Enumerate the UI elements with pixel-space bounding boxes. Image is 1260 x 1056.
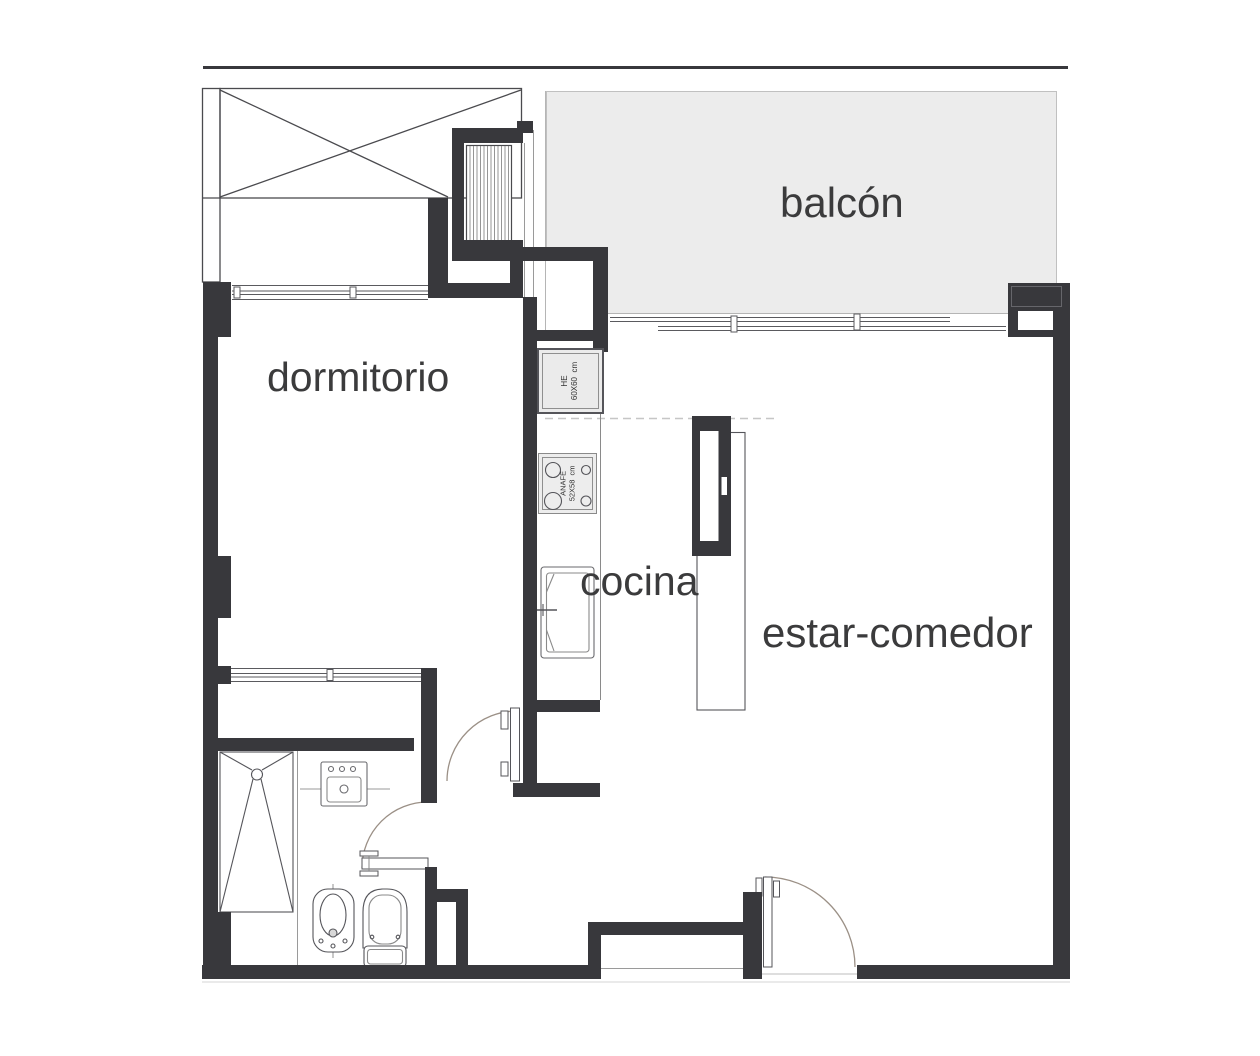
wall: [510, 256, 523, 298]
wall: [513, 783, 600, 797]
hall-door-swing: [447, 708, 520, 781]
wall: [1053, 337, 1070, 965]
wall: [428, 198, 448, 283]
wall: [537, 330, 598, 341]
bidet-symbol: [313, 884, 354, 958]
wall: [456, 902, 468, 965]
wall: [202, 965, 591, 979]
niche-recess: [601, 935, 743, 967]
floor-plan: HE 60X60 cm ANAFE 52X58 cm dormitorio ba…: [0, 0, 1260, 1056]
entrance-door-swing: [756, 877, 857, 974]
duct-hatch-symbol: [467, 146, 512, 243]
wall: [437, 889, 468, 902]
wall: [203, 282, 231, 337]
room-label-living-dining: estar-comedor: [762, 612, 1033, 654]
wall: [428, 283, 523, 298]
channel-lines: [525, 130, 534, 310]
shower-symbol: [220, 752, 293, 912]
wall: [425, 867, 437, 979]
wall: [452, 247, 608, 261]
washbasin-symbol: [300, 762, 390, 806]
cooktop-label-1: ANAFE: [558, 466, 567, 502]
room-label-balcony: balcón: [780, 182, 904, 224]
wall: [218, 556, 231, 618]
refrigerator: HE 60X60 cm: [537, 348, 604, 414]
refrigerator-label-1: HE: [561, 362, 571, 400]
island-counter: [692, 416, 745, 710]
wall: [203, 66, 1068, 69]
bathroom-door-swing: [360, 802, 428, 876]
cooktop: ANAFE 52X58 cm: [538, 453, 597, 514]
room-label-bedroom: dormitorio: [267, 357, 449, 398]
cooktop-label-2: 52X58 cm: [567, 466, 576, 502]
wall: [523, 297, 537, 712]
closet-sliding-door: [231, 669, 421, 682]
bedroom-window: [232, 286, 428, 300]
wall: [421, 668, 437, 803]
corner-post-cap: [1011, 286, 1062, 307]
refrigerator-label-2: 60X60 cm: [571, 362, 581, 400]
wall: [743, 892, 762, 979]
balcony-sliding-door: [610, 314, 1006, 332]
wall: [517, 121, 533, 133]
wall: [218, 666, 231, 684]
wall: [588, 922, 753, 935]
plan-linework: [0, 0, 1260, 1056]
wall: [857, 965, 1070, 979]
wall: [203, 337, 218, 965]
wall: [218, 738, 414, 751]
room-label-kitchen: cocina: [580, 561, 699, 602]
corner-post-notch: [1018, 311, 1053, 330]
toilet-symbol: [363, 889, 407, 967]
wall: [523, 700, 600, 712]
balcony-edge-lines: [546, 91, 1009, 330]
